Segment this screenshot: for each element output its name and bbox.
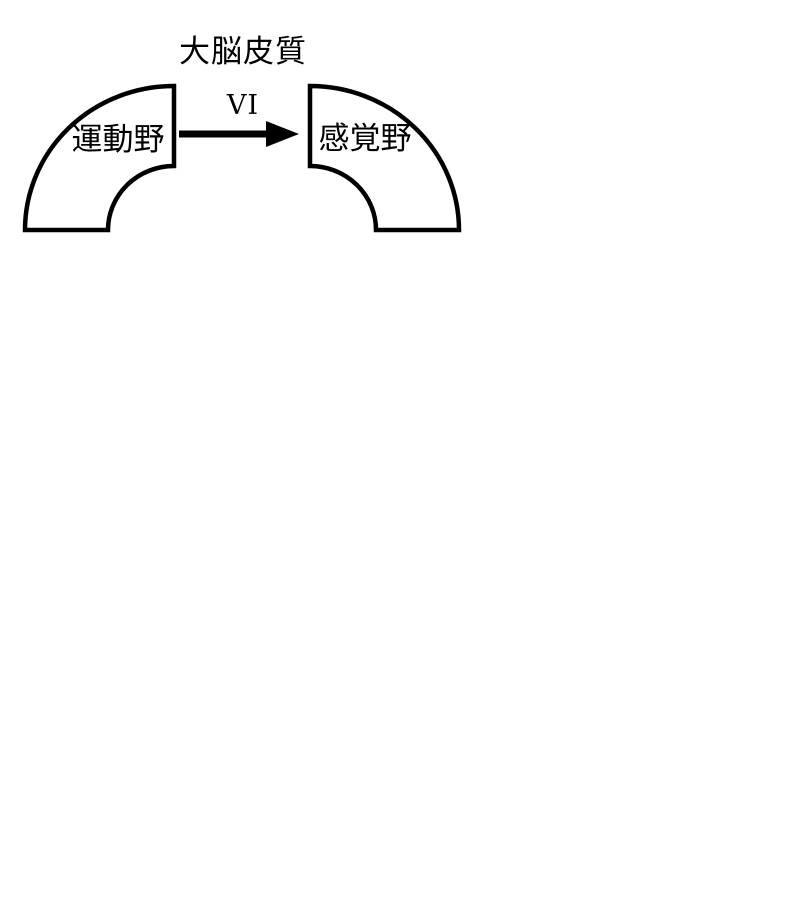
arrow-head-icon (266, 121, 299, 147)
diagram-title: 大脳皮質 (179, 34, 307, 70)
arrow-label: VI (227, 90, 259, 121)
motor-area-label: 運動野 (72, 122, 165, 158)
motor-area-shape (25, 86, 174, 230)
sensory-area-shape (310, 86, 459, 230)
sensory-area-label: 感覚野 (319, 121, 412, 157)
arrow (179, 121, 299, 147)
diagram-canvas: 大脳皮質 運動野 感覚野 VI (0, 0, 806, 912)
